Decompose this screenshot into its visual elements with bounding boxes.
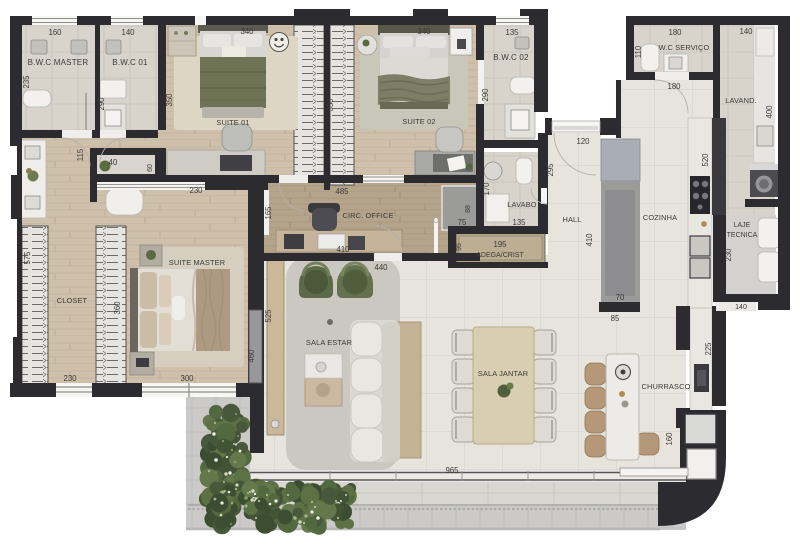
svg-text:60: 60 <box>147 164 154 172</box>
svg-text:965: 965 <box>445 466 459 475</box>
svg-text:CIRC. OFFICE: CIRC. OFFICE <box>342 211 393 220</box>
svg-text:ADEGA/CRIST: ADEGA/CRIST <box>476 252 524 259</box>
svg-text:140: 140 <box>121 28 135 37</box>
svg-text:230: 230 <box>189 186 203 195</box>
svg-text:W.C SERVIÇO: W.C SERVIÇO <box>659 43 710 52</box>
svg-text:B.W.C 01: B.W.C 01 <box>112 58 148 67</box>
svg-text:LAVABO: LAVABO <box>507 200 536 209</box>
svg-text:135: 135 <box>505 28 519 37</box>
svg-text:B.W.C MASTER: B.W.C MASTER <box>28 58 89 67</box>
svg-text:170: 170 <box>482 182 491 196</box>
svg-text:160: 160 <box>665 432 674 446</box>
svg-text:235: 235 <box>22 75 31 89</box>
svg-text:88: 88 <box>465 205 472 213</box>
svg-text:HALL: HALL <box>562 215 581 224</box>
svg-text:195: 195 <box>493 240 507 249</box>
svg-text:CHURRASCO: CHURRASCO <box>642 382 691 391</box>
svg-text:180: 180 <box>668 28 682 37</box>
svg-text:225: 225 <box>704 342 713 356</box>
svg-text:400: 400 <box>765 105 774 119</box>
svg-text:120: 120 <box>576 137 590 146</box>
svg-text:460: 460 <box>247 349 256 363</box>
svg-text:B.W.C 02: B.W.C 02 <box>493 53 529 62</box>
svg-text:160: 160 <box>48 28 62 37</box>
svg-text:440: 440 <box>374 263 388 272</box>
svg-text:SALA JANTAR: SALA JANTAR <box>478 369 528 378</box>
svg-text:TECNICA: TECNICA <box>727 232 758 239</box>
svg-text:180: 180 <box>667 82 681 91</box>
svg-text:410: 410 <box>336 245 350 254</box>
svg-text:SUITE 01: SUITE 01 <box>216 118 249 127</box>
svg-text:85: 85 <box>611 314 620 323</box>
svg-text:290: 290 <box>97 97 106 111</box>
svg-text:LAVAND.: LAVAND. <box>725 96 757 105</box>
svg-text:290: 290 <box>481 88 490 102</box>
svg-text:360: 360 <box>113 301 122 315</box>
svg-text:CLOSET: CLOSET <box>57 296 88 305</box>
svg-text:140: 140 <box>739 27 753 36</box>
svg-text:70: 70 <box>616 293 625 302</box>
svg-text:230: 230 <box>724 248 733 262</box>
svg-text:SUITE 02: SUITE 02 <box>402 117 435 126</box>
svg-text:95: 95 <box>456 243 463 251</box>
svg-text:SUITE MASTER: SUITE MASTER <box>169 258 225 267</box>
svg-text:140: 140 <box>735 304 747 311</box>
svg-text:75: 75 <box>458 218 467 227</box>
svg-text:LAJE: LAJE <box>734 222 751 229</box>
svg-text:135: 135 <box>512 218 526 227</box>
svg-text:230: 230 <box>63 374 77 383</box>
svg-text:350: 350 <box>165 93 174 107</box>
svg-text:575: 575 <box>23 251 32 265</box>
svg-text:SALA ESTAR: SALA ESTAR <box>306 338 352 347</box>
svg-text:295: 295 <box>546 163 555 177</box>
svg-text:165: 165 <box>264 206 273 220</box>
svg-text:410: 410 <box>585 233 594 247</box>
svg-text:525: 525 <box>264 309 273 323</box>
svg-text:350: 350 <box>326 98 335 112</box>
svg-text:485: 485 <box>335 187 349 196</box>
svg-text:115: 115 <box>76 148 85 161</box>
svg-text:520: 520 <box>701 153 710 167</box>
svg-text:110: 110 <box>634 45 643 58</box>
svg-text:300: 300 <box>180 374 194 383</box>
svg-text:340: 340 <box>240 27 254 36</box>
svg-text:40: 40 <box>109 158 118 167</box>
svg-text:COZINHA: COZINHA <box>643 213 677 222</box>
svg-text:340: 340 <box>417 27 431 36</box>
